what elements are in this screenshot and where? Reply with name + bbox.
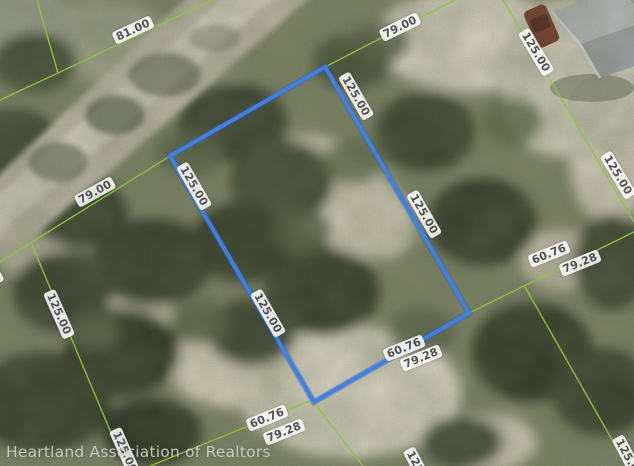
dimension-label: 79.00 bbox=[74, 176, 117, 208]
dimension-label: 125.00 bbox=[518, 27, 555, 76]
watermark: Heartland Association of Realtors bbox=[6, 443, 271, 461]
dimension-label: 125.00 bbox=[403, 446, 438, 466]
dimension-label: 125.00 bbox=[176, 161, 212, 211]
dimension-label: 125.00 bbox=[0, 236, 4, 286]
dimension-label: 79.00 bbox=[378, 12, 421, 42]
dimension-label: 125.00 bbox=[600, 150, 634, 199]
dimension-label: 125.00 bbox=[43, 289, 75, 340]
dimension-label: 125.00 bbox=[612, 434, 634, 466]
dimension-label: 125.00 bbox=[406, 189, 442, 239]
aerial-parcel-map: 81.0079.00125.00125.0079.00125.00125.001… bbox=[0, 0, 634, 466]
dimension-label-layer: 81.0079.00125.00125.0079.00125.00125.001… bbox=[0, 0, 634, 466]
dimension-label: 125.00 bbox=[338, 71, 374, 121]
dimension-label: 81.00 bbox=[111, 15, 154, 44]
dimension-label: 125.00 bbox=[250, 288, 286, 338]
